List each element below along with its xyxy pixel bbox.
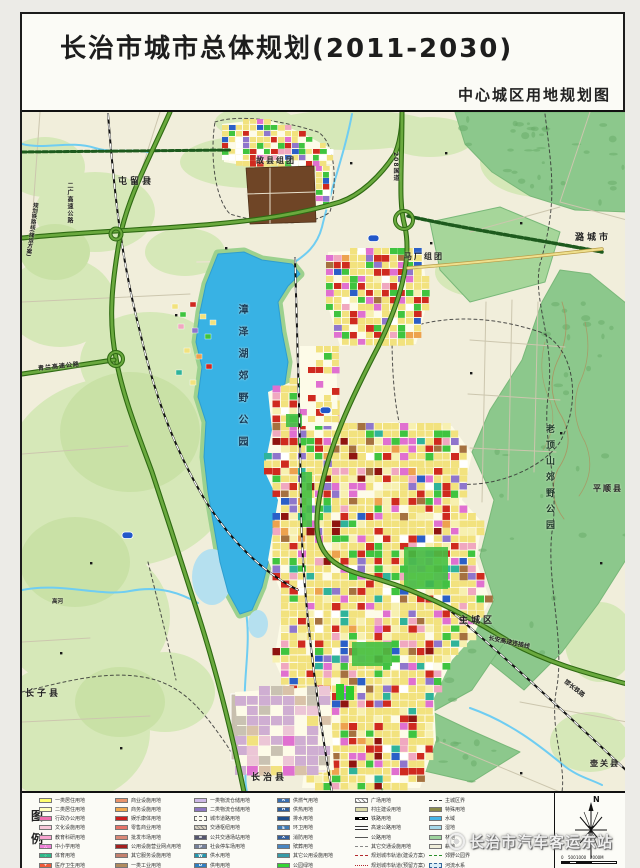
legend-swatch (277, 853, 290, 858)
legend-item: 二类居住用地 (39, 805, 85, 813)
legend-swatch (355, 865, 368, 866)
legend-label: 广场用地 (371, 797, 391, 804)
legend-label: 供燃气用地 (293, 797, 318, 804)
legend-label: 规划城市轨道(建设方案) (371, 852, 425, 859)
legend-label: 中小学用地 (55, 843, 80, 850)
legend-label: 公园绿地 (293, 862, 313, 868)
legend-label: 铁路用地 (371, 815, 391, 822)
page-title: 长治市城市总体规划(2011-2030) (60, 28, 513, 65)
scale-label: 0 (561, 855, 564, 860)
legend-label: 文化设施用地 (55, 824, 85, 831)
legend-swatch (355, 846, 368, 847)
legend-item: 城市道路用地 (194, 815, 240, 823)
legend-item: 郊野公园界 (429, 852, 470, 860)
legend-label: 公共交通场站用地 (210, 834, 250, 841)
legend-swatch (277, 816, 290, 821)
legend-label: 其它服务设施用地 (131, 852, 171, 859)
legend-label: 村庄建设用地 (371, 806, 401, 813)
legend-swatch (429, 863, 442, 868)
legend-item: H供热用地 (277, 805, 313, 813)
legend-label: 一类物流仓储用地 (210, 797, 250, 804)
legend-label: 一类居住用地 (55, 797, 85, 804)
legend-swatch: + (39, 863, 52, 868)
legend-swatch: W (194, 853, 207, 858)
legend-item: +医疗卫生用地 (39, 861, 85, 868)
legend-swatch (39, 835, 52, 840)
legend-swatch (429, 816, 442, 821)
legend-swatch (429, 855, 442, 856)
legend-swatch (39, 798, 52, 803)
legend-swatch (194, 798, 207, 803)
legend-swatch (115, 853, 128, 858)
north-arrow-icon (555, 802, 625, 862)
legend-swatch (194, 825, 207, 830)
legend-label: 供热用地 (293, 806, 313, 813)
legend-swatch: B (194, 835, 207, 840)
legend-label: 河流水系 (445, 862, 465, 868)
north-box: N 050010002000M (554, 793, 625, 868)
legend-item: 娱乐康体用地 (115, 815, 161, 823)
legend-item: 二类物流仓储用地 (194, 805, 250, 813)
legend-item: R供燃气用地 (277, 796, 318, 804)
legend-item: P社会停车场用地 (194, 843, 245, 851)
legend-swatch: ◦ (39, 853, 52, 858)
legend-item: 特殊用地 (429, 805, 465, 813)
legend-item: X消防用地 (277, 833, 313, 841)
legend-item: ∴中小学用地 (39, 843, 80, 851)
legend-label: 医疗卫生用地 (55, 862, 85, 868)
legend-label: 公用设施营业网点用地 (131, 843, 181, 850)
legend-swatch (115, 844, 128, 849)
legend-label: 耕地 (445, 843, 455, 850)
legend-label: 消防用地 (293, 834, 313, 841)
legend-swatch (429, 835, 442, 840)
legend: 图例 一类居住用地二类居住用地行政办公用地文化设施用地教育科研用地∴中小学用地◦… (22, 791, 625, 868)
legend-swatch (355, 837, 368, 838)
legend-swatch (115, 798, 128, 803)
legend-label: 殡葬用地 (293, 843, 313, 850)
legend-item: 交通枢纽用地 (194, 824, 240, 832)
legend-label: 交通枢纽用地 (210, 824, 240, 831)
legend-item: 批发市场用地 (115, 833, 161, 841)
legend-item: 一类居住用地 (39, 796, 85, 804)
map-canvas: 屯留县故县组团马厂组团潞城市平顺县主城区长子县长治县壶关县漳泽湖郊野公园老顶山郊… (22, 110, 625, 791)
legend-label: 主城区界 (445, 797, 465, 804)
legend-swatch (39, 825, 52, 830)
scale-label: 1000 (576, 855, 586, 860)
legend-item: 行政办公用地 (39, 815, 85, 823)
legend-item: 规划城市轨道(预留方案) (355, 861, 425, 868)
legend-label: 其它交通设施用地 (371, 843, 411, 850)
legend-swatch (429, 825, 442, 830)
legend-item: 湿地 (429, 824, 455, 832)
legend-item: B公共交通场站用地 (194, 833, 250, 841)
legend-swatch: P (194, 844, 207, 849)
legend-item: 一类工业用地 (115, 861, 161, 868)
legend-item: 零售商业用地 (115, 824, 161, 832)
legend-swatch (429, 807, 442, 812)
legend-item: 文化设施用地 (39, 824, 85, 832)
legend-label: 供水用地 (210, 852, 230, 859)
legend-item: 铁路用地 (355, 815, 391, 823)
legend-label: 湿地 (445, 824, 455, 831)
legend-swatch (39, 807, 52, 812)
legend-item: 耕地 (429, 843, 455, 851)
legend-label: 郊野公园界 (445, 852, 470, 859)
legend-label: 城市道路用地 (210, 815, 240, 822)
legend-label: 体育用地 (55, 852, 75, 859)
legend-item: 规划城市轨道(建设方案) (355, 852, 425, 860)
legend-label: 公路用地 (371, 834, 391, 841)
legend-item: 主城区界 (429, 796, 465, 804)
legend-swatch: X (277, 835, 290, 840)
legend-item: 商业设施用地 (115, 796, 161, 804)
legend-swatch (115, 835, 128, 840)
legend-item: 一类物流仓储用地 (194, 796, 250, 804)
scale-label: 500 (568, 855, 576, 860)
legend-item: 公用设施营业网点用地 (115, 843, 181, 851)
legend-label: 规划城市轨道(预留方案) (371, 862, 425, 868)
legend-label: 水域 (445, 815, 455, 822)
legend-item: 商务设施用地 (115, 805, 161, 813)
legend-item: 其它交通设施用地 (355, 843, 411, 851)
legend-item: 公路用地 (355, 833, 391, 841)
legend-item: 教育科研用地 (39, 833, 85, 841)
legend-swatch (429, 844, 442, 849)
legend-item: 广场用地 (355, 796, 391, 804)
legend-label: 其它公用设施用地 (293, 852, 333, 859)
planning-map-sheet: 长治市城市总体规划(2011-2030) 中心城区用地规划图 屯留县故县组团马厂… (0, 0, 640, 868)
legend-swatch (355, 807, 368, 812)
legend-swatch: H (277, 807, 290, 812)
legend-item: D供电用地 (194, 861, 230, 868)
legend-item: W供水用地 (194, 852, 230, 860)
legend-item: 林地 (429, 833, 455, 841)
legend-label: 批发市场用地 (131, 834, 161, 841)
legend-item: 河流水系 (429, 861, 465, 868)
legend-swatch: E (277, 825, 290, 830)
legend-item: E环卫用地 (277, 824, 313, 832)
legend-label: 零售商业用地 (131, 824, 161, 831)
legend-swatch (115, 863, 128, 868)
legend-label: 商务设施用地 (131, 806, 161, 813)
legend-swatch (429, 800, 442, 801)
legend-swatch (39, 816, 52, 821)
legend-swatch (355, 798, 368, 803)
legend-swatch (115, 816, 128, 821)
legend-label: 行政办公用地 (55, 815, 85, 822)
legend-label: 林地 (445, 834, 455, 841)
legend-label: 一类工业用地 (131, 862, 161, 868)
legend-swatch: D (194, 863, 207, 868)
title-bar: 长治市城市总体规划(2011-2030) 中心城区用地规划图 (22, 14, 623, 110)
legend-item: 其它服务设施用地 (115, 852, 171, 860)
legend-swatch (115, 807, 128, 812)
legend-label: 高速公路用地 (371, 824, 401, 831)
legend-swatch: ∴ (39, 844, 52, 849)
map-graphic (22, 112, 625, 791)
legend-item: 水域 (429, 815, 455, 823)
legend-swatch: R (277, 798, 290, 803)
legend-label: 二类居住用地 (55, 806, 85, 813)
legend-swatch (194, 816, 207, 821)
legend-label: 排水用地 (293, 815, 313, 822)
scale-bar: 050010002000M (561, 857, 621, 865)
legend-item: 高速公路用地 (355, 824, 401, 832)
legend-item: 公园绿地 (277, 861, 313, 868)
legend-swatch (194, 807, 207, 812)
legend-item: 其它公用设施用地 (277, 852, 333, 860)
legend-label: 二类物流仓储用地 (210, 806, 250, 813)
legend-label: 教育科研用地 (55, 834, 85, 841)
legend-label: 环卫用地 (293, 824, 313, 831)
legend-swatch (277, 844, 290, 849)
legend-item: 殡葬用地 (277, 843, 313, 851)
legend-swatch (355, 855, 368, 856)
legend-label: 特殊用地 (445, 806, 465, 813)
legend-swatch (355, 817, 368, 820)
legend-label: 社会停车场用地 (210, 843, 245, 850)
legend-item: 村庄建设用地 (355, 805, 401, 813)
legend-label: 娱乐康体用地 (131, 815, 161, 822)
legend-swatch (355, 826, 368, 830)
page-subtitle: 中心城区用地规划图 (458, 84, 611, 105)
scale-label: 2000M (590, 855, 604, 860)
legend-item: 排水用地 (277, 815, 313, 823)
legend-swatch (115, 825, 128, 830)
legend-label: 商业设施用地 (131, 797, 161, 804)
legend-swatch (277, 863, 290, 868)
legend-label: 供电用地 (210, 862, 230, 868)
legend-item: ◦体育用地 (39, 852, 75, 860)
